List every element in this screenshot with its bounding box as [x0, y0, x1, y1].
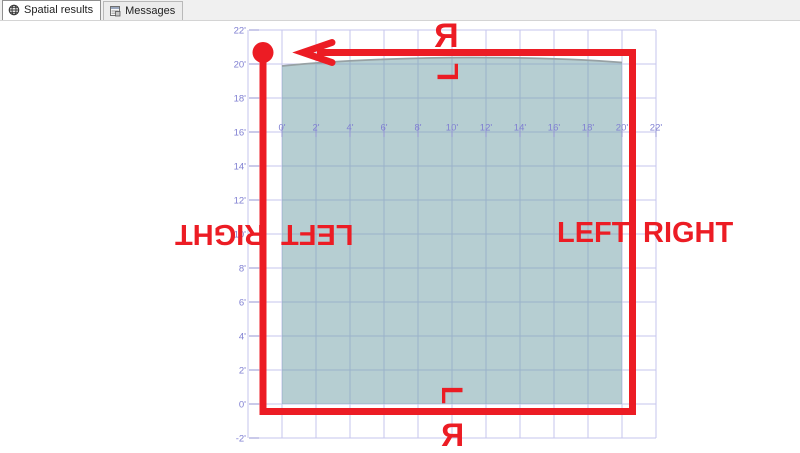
y-axis-label: 6' — [239, 298, 246, 309]
annotation-left-upside-down: LEFT — [281, 219, 354, 248]
y-axis-label: -2' — [236, 434, 246, 445]
y-axis-label: 22' — [234, 26, 247, 37]
y-axis-label: 0' — [239, 400, 246, 411]
y-axis-label: 16' — [234, 128, 247, 139]
annotation-bottom-r: R — [441, 419, 464, 451]
results-tab-bar: Spatial results Messages — [0, 0, 800, 21]
route-start-marker — [253, 42, 274, 63]
annotation-top-l: L — [434, 63, 464, 81]
y-axis-label: 4' — [239, 332, 246, 343]
tab-messages[interactable]: Messages — [103, 1, 183, 20]
x-axis-label: 8' — [414, 123, 421, 134]
x-axis-label: 12' — [480, 123, 493, 134]
x-axis-label: 14' — [514, 123, 527, 134]
tab-spatial-results[interactable]: Spatial results — [2, 0, 101, 20]
x-axis-label: 20' — [616, 123, 629, 134]
x-axis-label: 22' — [650, 123, 663, 134]
x-axis-label: 2' — [312, 123, 319, 134]
globe-icon — [8, 4, 20, 16]
y-axis-label: 2' — [239, 366, 246, 377]
annotation-right-label: RIGHT — [643, 219, 733, 248]
y-axis-label: 20' — [234, 60, 247, 71]
annotation-left-label: LEFT — [557, 219, 630, 248]
tab-label: Messages — [125, 5, 175, 17]
tab-label: Spatial results — [24, 4, 93, 16]
messages-icon — [109, 5, 121, 17]
x-axis-label: 16' — [548, 123, 561, 134]
annotation-right-upside-down: RIGHT — [175, 219, 265, 248]
y-axis-label: 18' — [234, 94, 247, 105]
y-axis-label: 12' — [234, 196, 247, 207]
y-axis-label: 8' — [239, 264, 246, 275]
x-axis-label: 0' — [278, 123, 285, 134]
annotation-bottom-l: L — [436, 386, 466, 404]
y-axis-label: 14' — [234, 162, 247, 173]
x-axis-label: 10' — [446, 123, 459, 134]
annotation-top-r: R — [434, 19, 459, 53]
x-axis-label: 18' — [582, 123, 595, 134]
x-axis-label: 6' — [380, 123, 387, 134]
x-axis-label: 4' — [346, 123, 353, 134]
